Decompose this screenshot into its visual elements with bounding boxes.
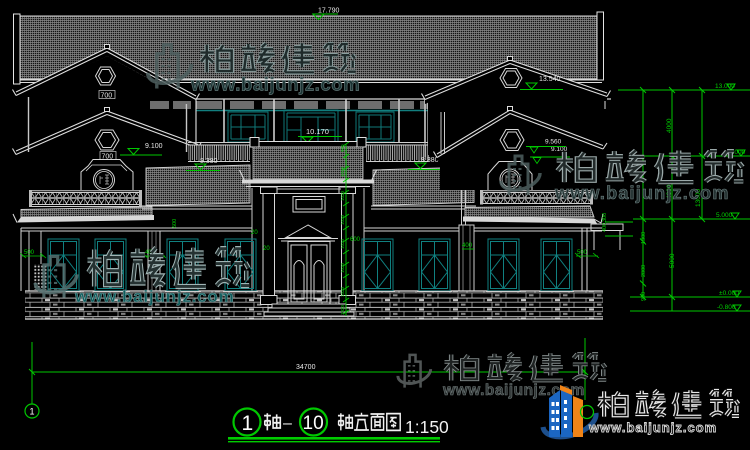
svg-text:500: 500 — [577, 250, 588, 256]
svg-text:www.baijunjz.com: www.baijunjz.com — [74, 287, 235, 306]
svg-text:20: 20 — [251, 230, 258, 236]
svg-text:1: 1 — [30, 407, 35, 417]
svg-text:1300: 1300 — [641, 232, 647, 244]
svg-text:5000: 5000 — [669, 253, 676, 268]
svg-text:17.790: 17.790 — [318, 8, 340, 15]
svg-text:900: 900 — [340, 144, 345, 152]
svg-text:1:150: 1:150 — [405, 417, 449, 437]
svg-text:20: 20 — [263, 246, 270, 252]
svg-text:1: 1 — [242, 412, 254, 435]
svg-text:300: 300 — [602, 213, 608, 222]
svg-text:1020: 1020 — [340, 262, 345, 273]
svg-text:34700: 34700 — [296, 364, 316, 371]
svg-text:10: 10 — [303, 413, 324, 434]
svg-text:1020: 1020 — [340, 304, 345, 315]
svg-text:www.baijunjz.com: www.baijunjz.com — [190, 74, 360, 95]
svg-text:1020: 1020 — [340, 166, 345, 177]
svg-text:www.baijunjz.com: www.baijunjz.com — [588, 420, 717, 435]
svg-text:10.170: 10.170 — [306, 127, 329, 136]
svg-text:600: 600 — [350, 237, 361, 243]
svg-text:-0.800: -0.800 — [717, 304, 736, 311]
svg-text:1020: 1020 — [340, 190, 345, 201]
svg-text:9.560: 9.560 — [545, 139, 562, 146]
svg-text:www.baijunjz.com: www.baijunjz.com — [554, 183, 730, 203]
svg-text:500: 500 — [24, 250, 35, 256]
svg-text:13.540: 13.540 — [539, 76, 561, 83]
svg-text:700: 700 — [101, 93, 113, 100]
svg-text:1020: 1020 — [340, 286, 345, 297]
svg-text:9.100: 9.100 — [145, 143, 163, 150]
svg-text:900: 900 — [641, 292, 647, 301]
svg-text:1020: 1020 — [340, 238, 345, 249]
svg-text:400: 400 — [602, 223, 608, 232]
svg-text:5.000: 5.000 — [716, 212, 733, 219]
svg-text:1020: 1020 — [340, 214, 345, 225]
svg-text:500: 500 — [172, 219, 178, 228]
svg-text:2800: 2800 — [641, 265, 647, 277]
svg-text:±0.000: ±0.000 — [719, 290, 739, 297]
svg-text:–: – — [283, 415, 292, 432]
svg-text:13.000: 13.000 — [715, 83, 735, 90]
svg-text:4000: 4000 — [666, 118, 673, 133]
svg-text:400: 400 — [462, 243, 473, 249]
